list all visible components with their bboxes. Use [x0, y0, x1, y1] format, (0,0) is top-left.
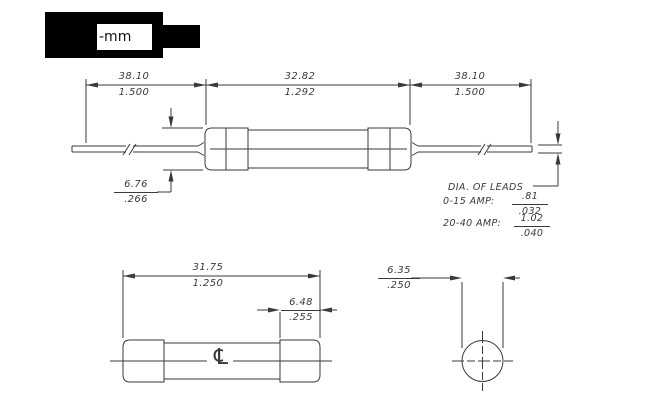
- dim-body-in: 1.292: [276, 87, 324, 99]
- leads-note-row2-label: 20-40 AMP:: [443, 218, 501, 230]
- centerline-symbol: ℄: [211, 347, 231, 369]
- dim-lead-right-in: 1.500: [446, 87, 494, 99]
- dim-body-mm: 32.82: [276, 71, 324, 83]
- dim-end-diameter-in: .250: [378, 279, 420, 292]
- dim-end-diameter: 6.35 .250: [378, 265, 420, 292]
- lead-wire-right: [412, 143, 532, 156]
- dim-cap-diameter-in: .266: [114, 193, 158, 206]
- leads-note-row2-in: .040: [514, 227, 550, 240]
- lead-diameter-dimension: [533, 121, 562, 186]
- dim-lead-left-mm: 38.10: [110, 71, 158, 83]
- leads-note-row2-mm: 1.02: [514, 213, 550, 227]
- lead-wire-left: [72, 143, 204, 156]
- technical-drawing: [0, 0, 646, 413]
- dim-bottom-body-in: 1.250: [184, 278, 232, 290]
- dim-lead-right-mm: 38.10: [446, 71, 494, 83]
- leads-note-row1-label: 0-15 AMP:: [443, 196, 495, 208]
- dim-cap-diameter-mm: 6.76: [114, 179, 158, 193]
- fuse-end-view: [411, 276, 520, 392]
- dim-bottom-cap: 6.48 .255: [281, 297, 321, 324]
- dim-lead-left-in: 1.500: [110, 87, 158, 99]
- dim-cap-diameter: 6.76 .266: [114, 179, 158, 206]
- dim-end-diameter-mm: 6.35: [378, 265, 420, 279]
- cap-diameter-dimension: [157, 108, 203, 192]
- dim-bottom-body-mm: 31.75: [184, 262, 232, 274]
- fuse-technical-drawing-page: -mm: [0, 0, 646, 413]
- fuse-body-top-view: [205, 128, 411, 170]
- dim-bottom-cap-mm: 6.48: [281, 297, 321, 311]
- dim-bottom-cap-in: .255: [281, 311, 321, 324]
- leads-note-row2-value: 1.02 .040: [514, 213, 550, 240]
- leads-note-row1-mm: .81: [512, 191, 548, 205]
